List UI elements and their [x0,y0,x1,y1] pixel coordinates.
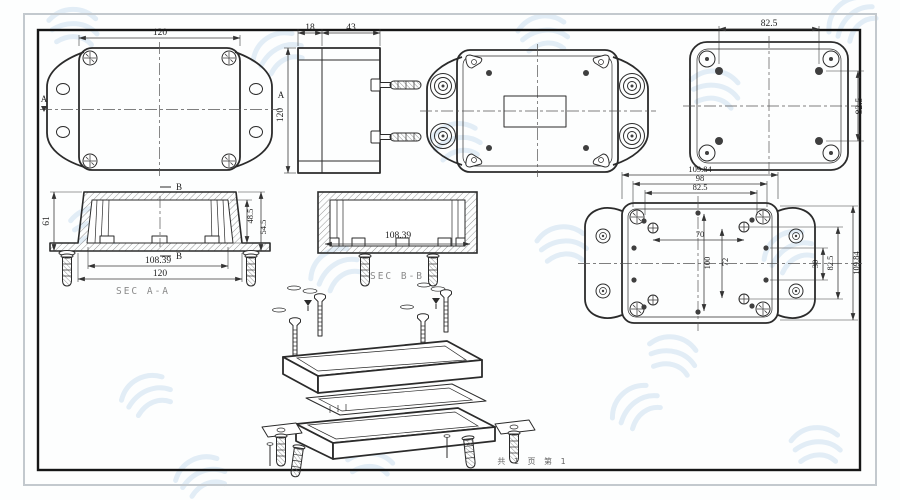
dim-secb-inner-width: 108.39 [385,231,411,241]
section-aa-label: SEC A-A [116,286,170,297]
side-view: A 120 18 43 [276,23,421,173]
ear-hole-icon [596,284,610,298]
screw-anchor-icon [371,79,421,91]
wall-anchor-icon [275,434,287,466]
boss-rosette-icon [431,124,456,149]
section-marker-a-left: A [41,94,48,104]
section-marker-a-right: A [278,90,285,100]
dim-lid-height: 82.5 [855,97,865,114]
ear-hole-icon [596,229,610,243]
boss-rosette-icon [620,74,645,99]
corner-screw-icon [630,302,644,316]
screw-anchor-icon [371,131,421,143]
boss-rosette-icon [431,74,456,99]
corner-screw-icon [756,210,770,224]
cover-screw-icon [441,290,452,332]
wall-anchor-icon [427,254,439,286]
dim-seca-inner-height: 48.5 [245,209,255,224]
corner-screw-icon [83,154,97,168]
dim-base-r-mid: 82.5 [825,256,835,271]
dim-front-width: 120 [153,28,168,38]
front-view: 120 A [40,28,279,176]
cover-screw-icon [315,294,326,336]
section-marker-b-bottom: B [176,251,182,261]
ear-hole-icon [789,284,803,298]
dim-side-body: 43 [346,23,356,33]
base-inner-view: 109.84 98 82.5 70 100 72 30 82.5 109.84 [578,164,862,331]
dim-base-hole-span: 70 [696,229,705,239]
cover-screw-icon [290,318,301,360]
corner-pocket-icon [593,154,609,167]
corner-screw-icon [83,51,97,65]
dim-seca-height: 61 [42,216,52,226]
dim-side-lid: 18 [305,23,315,33]
corner-pocket-icon [466,55,482,68]
lid-corner-hole-icon [699,51,715,67]
wall-anchor-icon [289,444,305,477]
corner-screw-icon [222,154,236,168]
dim-base-v-inner: 72 [720,258,730,267]
dim-base-r-small: 30 [810,260,820,269]
dim-side-height: 120 [276,108,286,123]
corner-screw-icon [756,302,770,316]
boss-rosette-icon [620,124,645,149]
corner-pocket-icon [466,154,482,167]
drawing-sheet: 120 A A 120 18 43 [0,0,900,500]
lid-corner-hole-icon [699,145,715,161]
back-view [420,44,656,177]
dim-seca-outer-height: 54.5 [258,220,268,235]
dim-seca-outer-width: 120 [153,269,168,279]
corner-pocket-icon [593,55,609,68]
lid-corner-hole-icon [823,51,839,67]
section-bb-view: 108.39 SEC B-B [318,192,477,286]
section-aa-view: B B 61 48.5 54.5 108.39 120 SEC A-A [42,182,270,297]
dim-lid-width: 82.5 [761,19,778,29]
section-bb-label: SEC B-B [370,271,424,282]
footer-page-info: 共 1 页 第 1 [497,456,568,466]
dim-seca-inner-width: 108.39 [145,256,171,266]
wall-anchor-icon [245,254,257,286]
dim-base-r-outer: 109.84 [851,251,861,275]
wall-anchor-icon [61,254,73,286]
exploded-view [262,283,535,478]
corner-screw-icon [222,51,236,65]
dim-base-top-inner: 82.5 [693,182,708,192]
lid-corner-hole-icon [823,145,839,161]
dim-base-v-outer: 100 [702,257,712,270]
section-marker-b-top: B [176,182,182,192]
